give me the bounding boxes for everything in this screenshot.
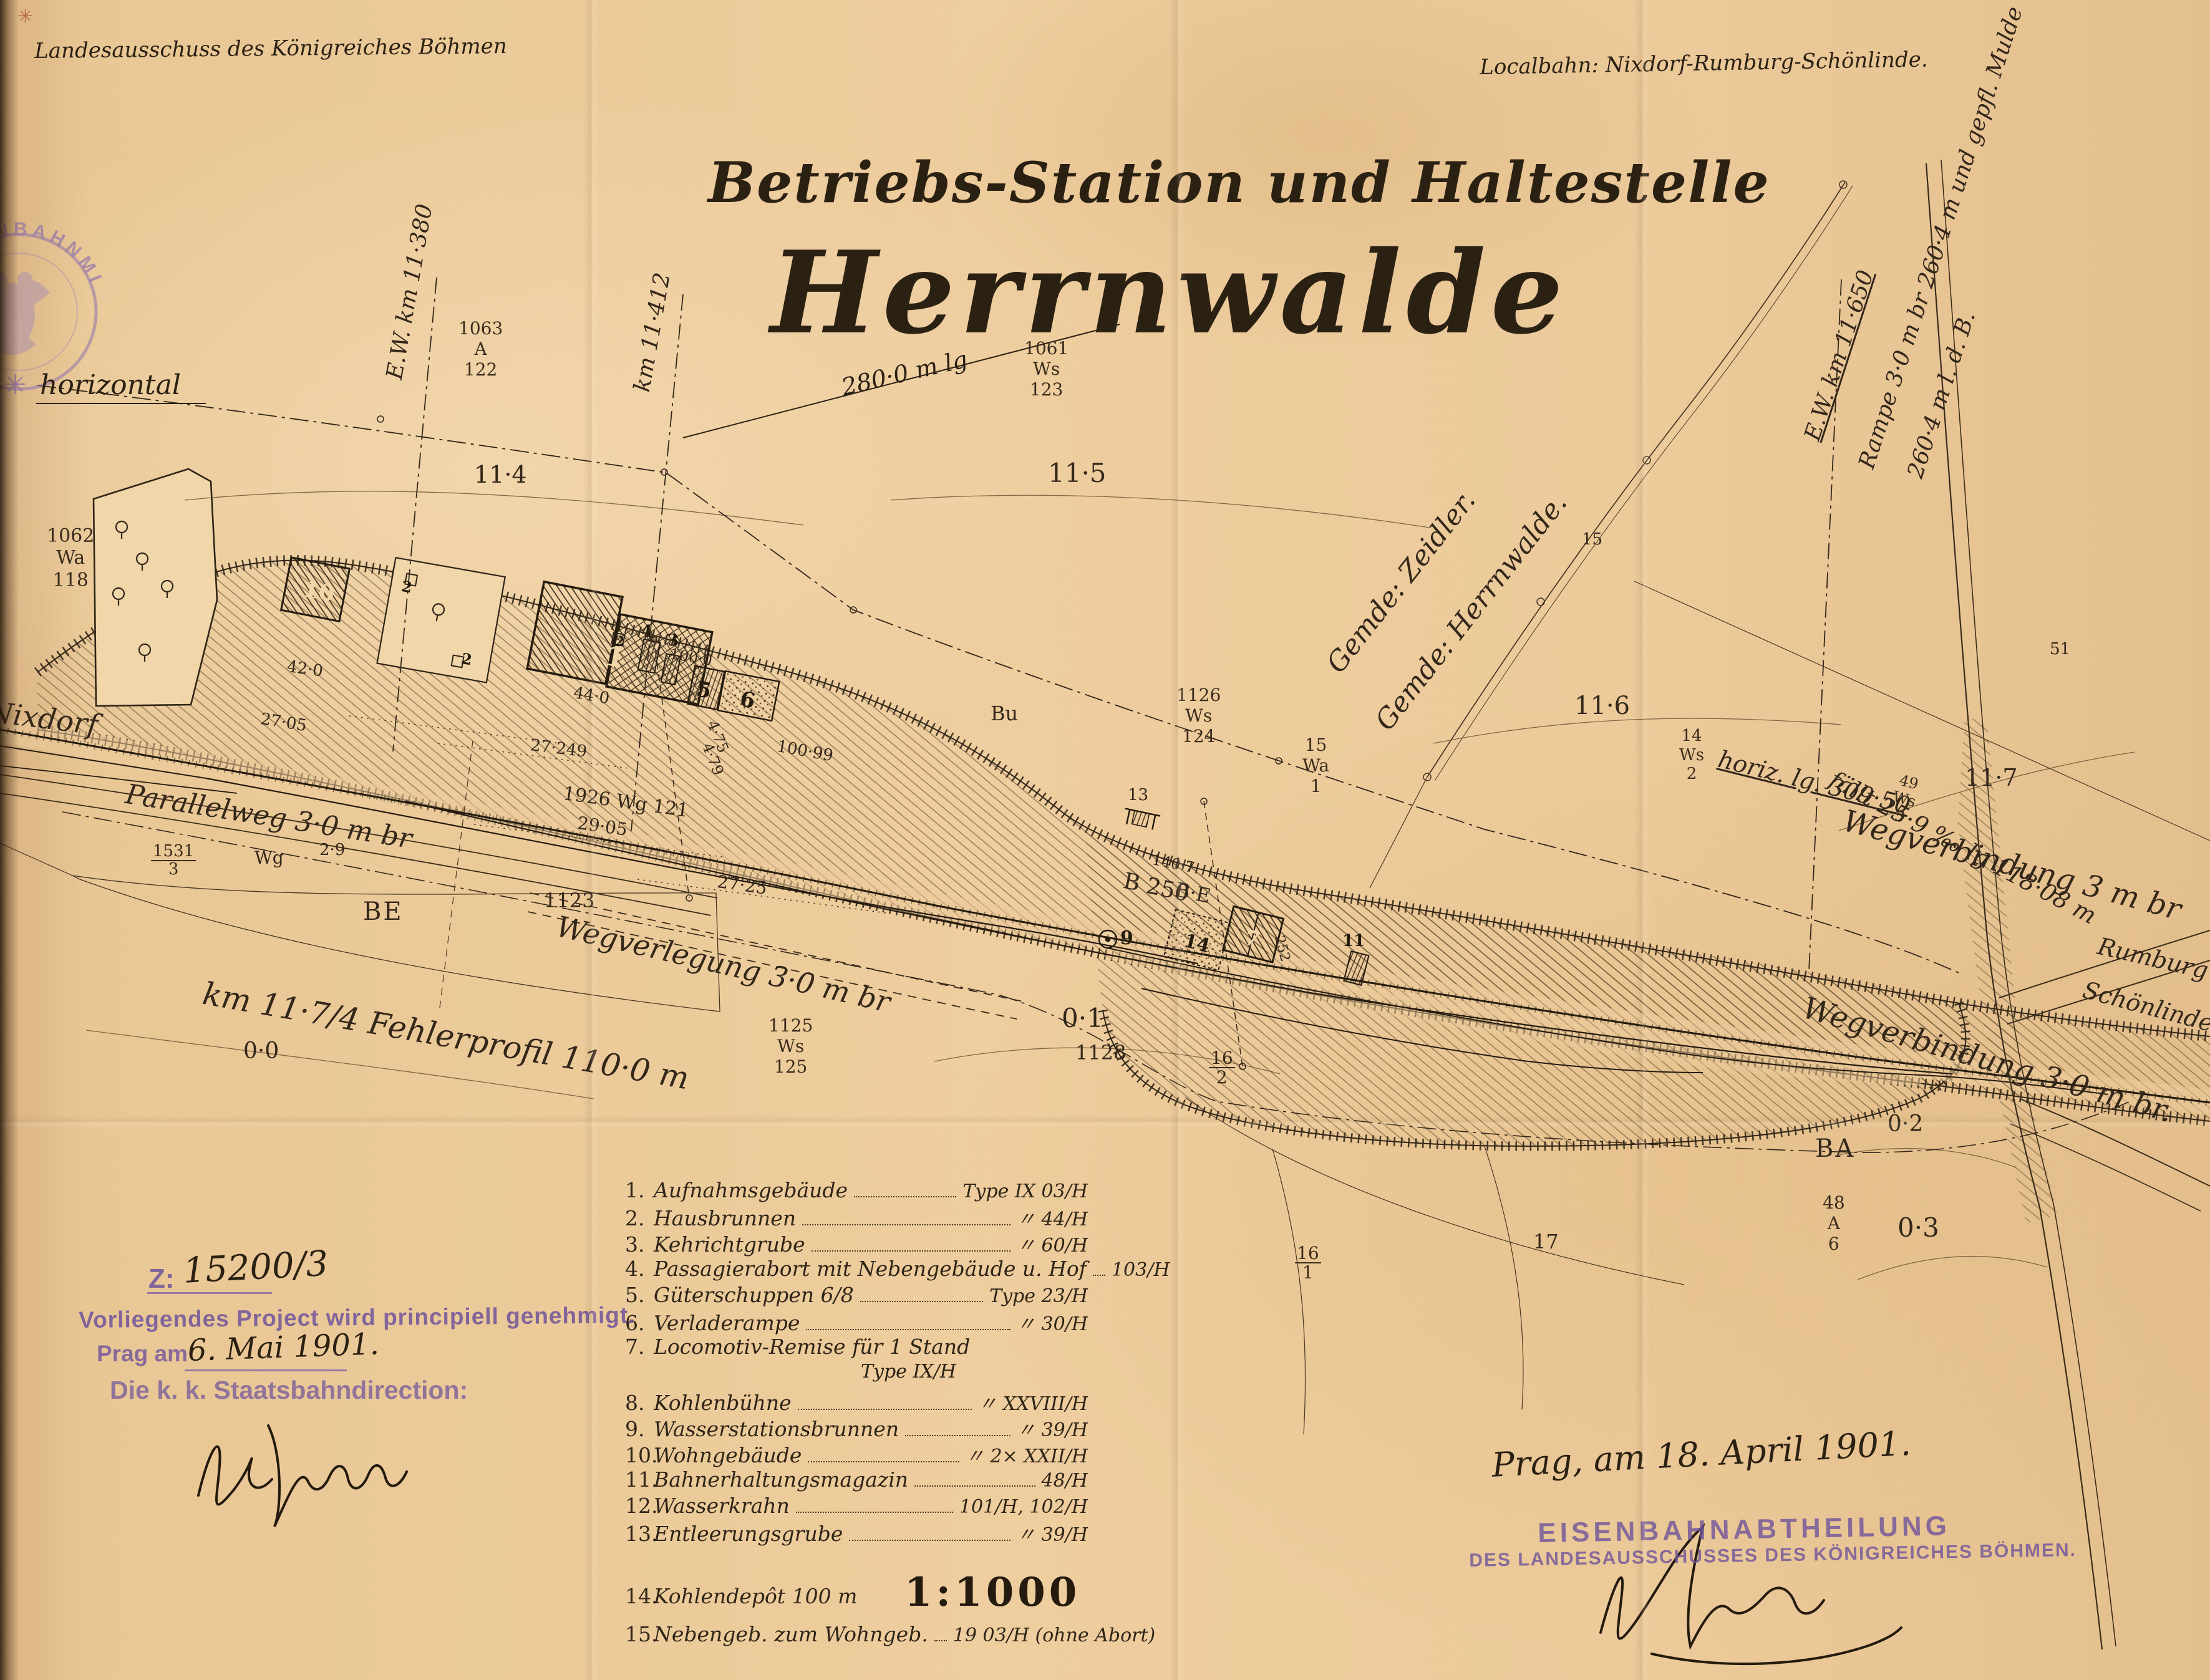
label-parcel-15: 15	[1582, 531, 1602, 548]
horizontal-note: horizontal	[40, 369, 181, 401]
label-42-0: 42·0	[286, 659, 324, 680]
scanned-plan-page: EISENBAHNMINISTERIUM Landesausschuss des…	[0, 0, 2210, 1680]
well-2c-number: 2	[615, 635, 624, 649]
legend-item-11: 11.Bahnerhaltungsmagazin48/H	[625, 1467, 1088, 1492]
legend-item-13: 13.Entleerungsgrube〃 39/H	[625, 1519, 1088, 1547]
label-11-6: 11·6	[1574, 693, 1630, 718]
header-left: Landesausschuss des Königreiches Böhmen	[34, 34, 507, 64]
file-number-underline	[147, 1292, 272, 1294]
label-11-5: 11·5	[1048, 460, 1107, 486]
legend-item-2: 2.Hausbrunnen〃 44/H	[625, 1204, 1088, 1231]
building-10-number: 10	[301, 577, 336, 606]
parcel-1062: 1062Wa118	[47, 525, 94, 591]
label-0-3: 0·3	[1897, 1215, 1939, 1241]
building-11-number: 11	[1342, 933, 1365, 949]
label-ba: BA	[1815, 1136, 1855, 1161]
label-13-track: 13	[1128, 787, 1148, 803]
legend-item-12: 12.Wasserkrahn101/H, 102/H	[625, 1493, 1088, 1518]
label-11-4: 11·4	[474, 463, 527, 486]
label-parcel-1128: 1128	[1075, 1043, 1126, 1063]
file-number: 15200/3	[182, 1243, 329, 1291]
legend-item-4: 4.Passagierabort mit Nebengebäude u. Hof…	[625, 1256, 1088, 1281]
legend-item-15: 15.Nebengeb. zum Wohngeb.19 03/H (ohne A…	[625, 1621, 1088, 1646]
label-parcel-17: 17	[1533, 1232, 1559, 1252]
legend-item-7-value: Type IX/H	[861, 1361, 956, 1383]
approval-date-underline	[185, 1369, 347, 1371]
label-bu: Bu	[991, 703, 1018, 723]
parcel-16-1: 161	[1295, 1244, 1321, 1282]
label-0-1: 0·1	[1062, 1005, 1103, 1031]
label-0-0: 0·0	[243, 1040, 279, 1063]
file-z-prefix: Z:	[148, 1263, 175, 1295]
approval-date: 6. Mai 1901.	[187, 1326, 380, 1368]
label-2-9: 2·9	[319, 842, 345, 858]
parcel-15-wa-1: 15Wa1	[1302, 735, 1329, 796]
signature-left	[198, 1426, 407, 1527]
legend-item-6: 6.Verladerampe〃 30/H	[625, 1308, 1088, 1336]
parcel-48-a-6: 48A6	[1823, 1192, 1845, 1254]
parcel-1125: 1125Ws125	[768, 1015, 813, 1077]
map-scale: 1:1000	[904, 1569, 1080, 1616]
legend-item-1: 1.AufnahmsgebäudeType IX 03/H	[625, 1177, 1088, 1202]
building-9-number: 9	[1120, 929, 1133, 948]
label-be: BE	[363, 899, 404, 924]
legend-item-8: 8.Kohlenbühne〃 XXVIII/H	[625, 1388, 1088, 1416]
page-title-line1: Betriebs-Station und Haltestelle	[708, 150, 1770, 216]
label-parcel-1123: 1123	[544, 891, 594, 910]
page-title-line2: Herrnwalde	[770, 226, 1568, 359]
parcel-14-ws-2: 14Ws2	[1679, 727, 1704, 784]
legend-item-7: 7.Locomotiv-Remise für 1 Stand	[625, 1335, 1088, 1359]
red-mark-icon: ✳	[17, 7, 33, 26]
label-51: 51	[2050, 641, 2070, 657]
legend-item-9: 9.Wasserstationsbrunnen〃 39/H	[625, 1414, 1088, 1442]
approval-prag-am: Prag am	[97, 1341, 188, 1367]
legend-item-5: 5.Güterschuppen 6/8Type 23/H	[625, 1282, 1088, 1307]
book-gutter-shadow	[0, 0, 19, 1680]
approval-direction: Die k. k. Staatsbahndirection:	[110, 1376, 468, 1405]
building-4-number: 4	[641, 624, 652, 640]
label-0-2: 0·2	[1888, 1113, 1923, 1136]
building-3-number: 3	[667, 632, 679, 649]
label-wg: Wg	[254, 849, 284, 867]
parcel-1126: 1126Ws124	[1176, 685, 1221, 746]
label-11-7: 11·7	[1965, 766, 2018, 789]
legend-item-3: 3.Kehrichtgrube〃 60/H	[625, 1230, 1088, 1257]
parcel-1061: 1061Ws123	[1024, 338, 1069, 400]
parcel-1531-3: 15313	[151, 843, 196, 879]
parcel-16-2: 162	[1209, 1049, 1235, 1087]
horizontal-underline	[36, 403, 206, 404]
legend-item-10: 10.Wohngebäude〃 2× XXII/H	[625, 1441, 1088, 1468]
parcel-1063: 1063A122	[458, 318, 503, 380]
